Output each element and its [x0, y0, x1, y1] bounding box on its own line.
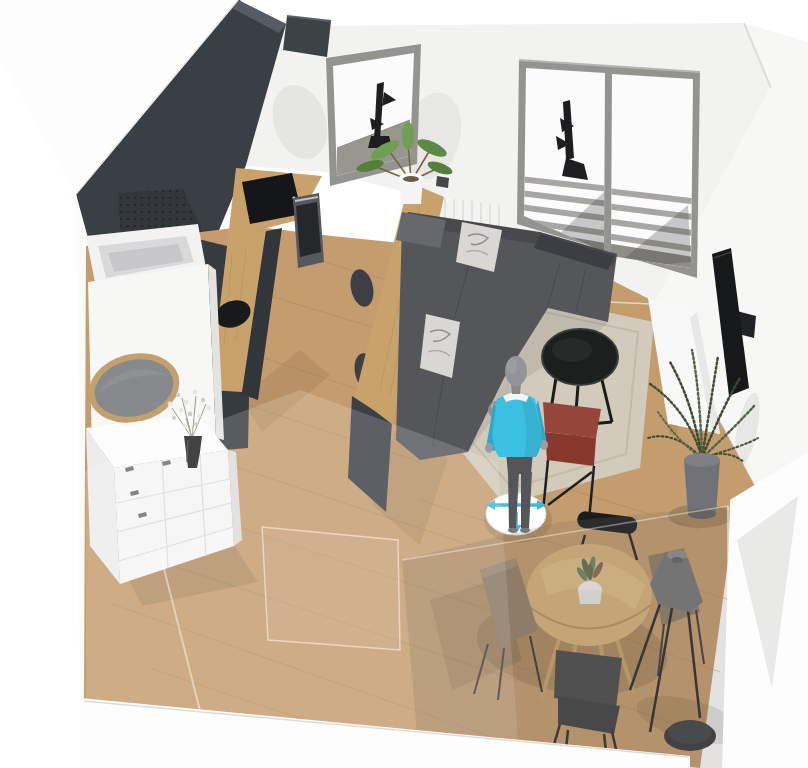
avatar-hand — [540, 440, 548, 450]
avatar-hand — [485, 443, 493, 453]
room-3d-scene[interactable] — [0, 0, 808, 768]
kitchen-hood[interactable] — [283, 16, 331, 57]
fern-pot — [684, 460, 720, 514]
glass-pane-reflection — [262, 527, 400, 650]
oven-glass — [296, 202, 321, 257]
table-sheen — [552, 338, 592, 362]
wall-socket — [436, 176, 449, 188]
planner-viewport[interactable] — [0, 0, 808, 768]
head-highlight — [507, 358, 517, 374]
pot-soil — [403, 176, 419, 182]
fern-pot-rim — [684, 453, 720, 467]
